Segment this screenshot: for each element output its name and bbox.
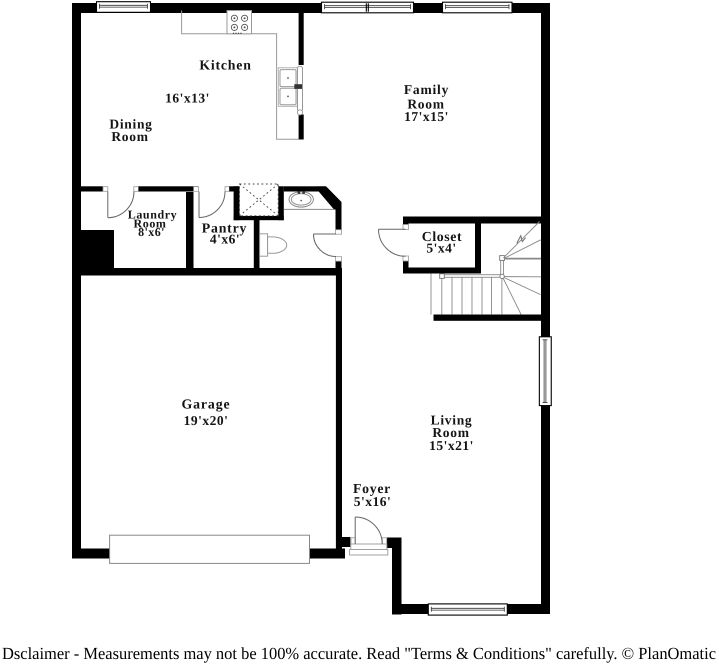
svg-text:Room: Room [111, 129, 148, 144]
svg-text:17'x15': 17'x15' [404, 109, 449, 124]
svg-text:16'x13': 16'x13' [165, 91, 210, 106]
svg-text:Garage: Garage [181, 397, 230, 413]
svg-text:5'x16': 5'x16' [354, 494, 392, 509]
svg-text:5'x4': 5'x4' [426, 241, 456, 256]
svg-text:Family: Family [404, 82, 449, 97]
svg-text:Dsclaimer - Measurements may n: Dsclaimer - Measurements may not be 100%… [2, 644, 716, 663]
svg-text:Kitchen: Kitchen [199, 58, 251, 73]
svg-text:8'x6': 8'x6' [138, 225, 165, 239]
svg-text:4'x6': 4'x6' [210, 232, 240, 247]
svg-text:19'x20': 19'x20' [184, 413, 229, 428]
svg-text:15'x21': 15'x21' [429, 438, 474, 453]
